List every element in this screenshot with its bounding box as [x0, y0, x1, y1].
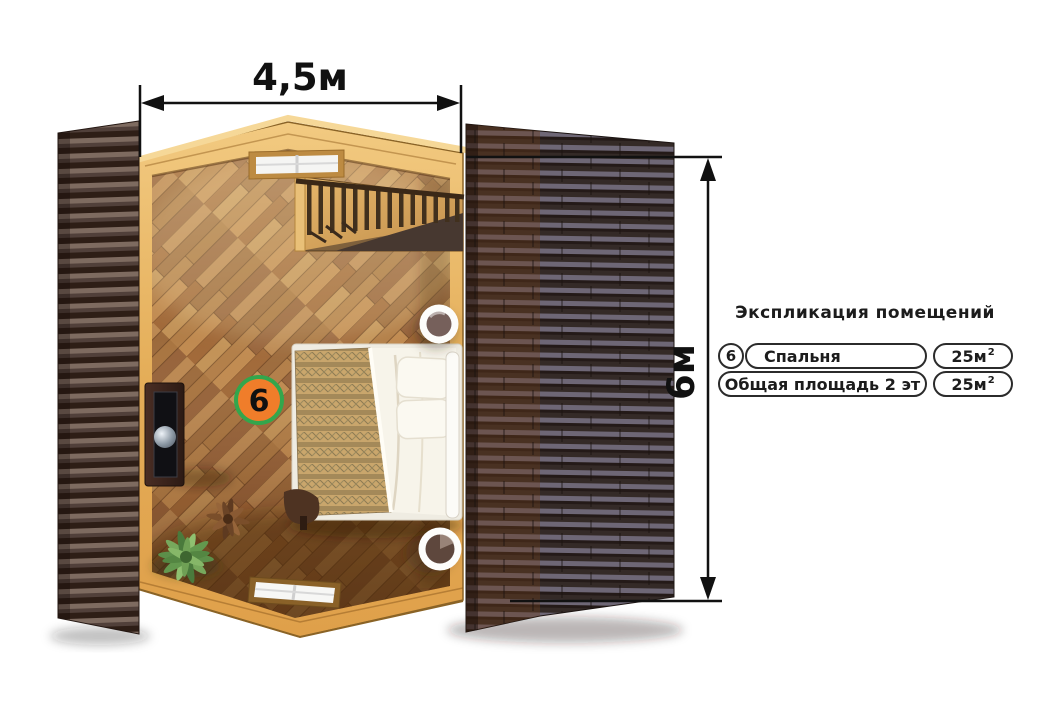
bed — [284, 344, 463, 538]
legend-room-area-value: 25м — [951, 347, 986, 366]
roof-panel-right — [447, 124, 683, 643]
arrowhead-left — [141, 95, 164, 111]
legend-room-name: Спальня — [745, 343, 927, 369]
roof-window-top — [249, 150, 344, 179]
height-dimension-label: 6м — [660, 344, 703, 400]
pillow — [396, 357, 452, 400]
legend-total-area-sup: 2 — [988, 375, 995, 386]
roof-panel-left — [50, 121, 150, 645]
arrowhead-right — [437, 95, 460, 111]
legend-room-number: 6 — [718, 343, 744, 369]
legend-room-number-text: 6 — [726, 347, 736, 365]
roof-window-bottom — [248, 577, 341, 608]
tv-speaker-ball — [154, 426, 176, 448]
legend-room-name-text: Спальня — [764, 347, 841, 366]
arrowhead-down — [700, 577, 716, 600]
width-dimension-label: 4,5м — [252, 56, 348, 99]
legend-total-area-value: 25м — [951, 375, 986, 394]
pillow — [396, 399, 451, 439]
legend-total-name: Общая площадь 2 эт — [718, 371, 927, 397]
stair-newel-post — [295, 178, 305, 251]
bed-headboard — [446, 352, 459, 518]
legend-title: Экспликация помещений — [710, 303, 1020, 323]
legend-room-area: 25м2 — [933, 343, 1013, 369]
legend-room-area-sup: 2 — [988, 347, 995, 358]
floor-plan-page: 6 4,5м 6м Экспликация помещений 6 — [0, 0, 1048, 706]
room-number-badge: 6 — [236, 377, 282, 423]
room-number-text: 6 — [249, 384, 270, 419]
legend-total-name-text: Общая площадь 2 эт — [725, 375, 920, 394]
arrowhead-up — [700, 158, 716, 181]
legend: Экспликация помещений 6 Спальня 25м2 Общ… — [710, 300, 1040, 400]
legend-total-area: 25м2 — [933, 371, 1013, 397]
